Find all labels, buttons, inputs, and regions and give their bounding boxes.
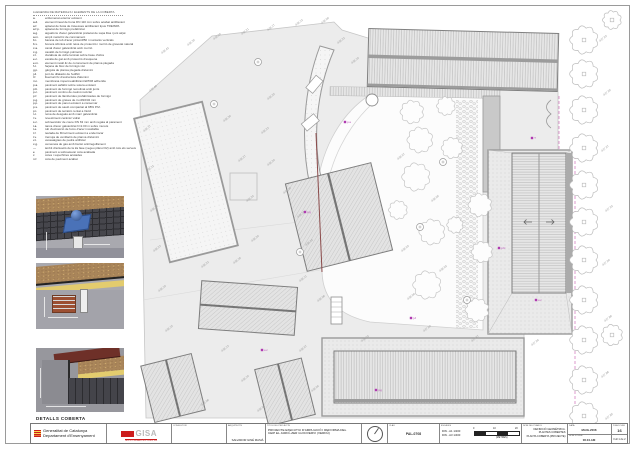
material-marker-code: p.fc: [501, 246, 506, 250]
consultor-cell: CONSULTOR: [171, 424, 226, 443]
arquitecte-label: ARQUITECTE: [228, 425, 242, 427]
gisa-logo-icon: [121, 431, 134, 437]
escales-cell: ESCALES DIN - A1 1/200 DIN - A3 1/400 0 …: [439, 424, 521, 443]
plan-name-line3: PLANTA COBERTA (PROJECTE): [527, 435, 566, 438]
material-marker-icon: [304, 211, 306, 213]
escala-a1: DIN - A1 1/200: [442, 429, 460, 433]
tree-icon: [570, 246, 598, 274]
planol-subcell: PLÀNOL NÚM. 16: [612, 424, 627, 434]
fitxer-value: 06.04.AM: [568, 438, 610, 442]
tree-icon: [570, 60, 598, 88]
building-east-wing: [488, 150, 572, 334]
tree-icon: [570, 96, 598, 124]
tree-icon: [570, 134, 598, 162]
fitxer-label: NOM FITXER: [569, 435, 583, 437]
full-value: Full 1 de 2: [612, 438, 627, 441]
plan-name-label: NOM DEL PLÀNOL: [523, 425, 542, 427]
gisa-name: GISA: [135, 430, 157, 437]
generalitat-line2: Departament d'Ensenyament: [43, 434, 95, 439]
spot-elevation: 437.93: [598, 34, 608, 43]
planter-circle: [366, 94, 378, 106]
detail-photo-edge: [36, 263, 124, 329]
escala-a3: DIN - A3 1/400: [442, 433, 460, 437]
scale-tick-0: 0: [473, 427, 474, 430]
building-south-roof: [198, 281, 297, 336]
spot-elevation: 437.86: [600, 370, 610, 379]
planol-value: 16: [612, 428, 627, 433]
data-label: DATA: [569, 425, 575, 427]
building-southeast-wing: [322, 338, 524, 416]
sheet-number-cell: PLÀNOL NÚM. 16 Full 1 de 2: [611, 424, 627, 443]
material-marker-icon: [498, 247, 500, 249]
data-subcell: DATA MAIG-2008: [568, 424, 611, 434]
material-marker-code: p.g: [307, 211, 311, 214]
plan-sheet: 438.42438.35438.28438.21438.17438.12438.…: [0, 0, 635, 449]
building-north-roof: [367, 29, 558, 92]
details-section-label: DETALLS COBERTA: [36, 416, 86, 421]
spot-elevation: 437.95: [602, 88, 612, 97]
gisa-cell: GISA GESTIÓ D'INFRAESTRUCTURES, S.A.: [106, 424, 171, 443]
escales-label: ESCALES: [441, 425, 451, 427]
spot-elevation: 437.94: [530, 338, 540, 347]
generalitat-logo-icon: [34, 430, 41, 437]
detail-photo-parapet: [36, 348, 124, 412]
materials-legend: LLEGENDA DE MATERIALS I ELEMENTS DE LA C…: [33, 11, 215, 162]
north-cell: [361, 424, 387, 443]
title-block: Generalitat de Catalunya Departament d'E…: [30, 423, 628, 444]
vent-pipe: [80, 289, 88, 313]
material-marker-icon: [410, 317, 412, 319]
parapet-wall: [42, 360, 70, 404]
material-marker-code: p.g: [378, 389, 382, 392]
material-marker-code: p.a: [347, 121, 351, 124]
scale-tick-10: 10: [493, 427, 496, 430]
arquitecte-name: SALVADOR GINÉ MASIÀ: [232, 438, 264, 442]
legend-header: LLEGENDA DE MATERIALS I ELEMENTS DE LA C…: [33, 11, 123, 16]
legend-items: a.enllumenat exterior existenta.d.elemen…: [33, 17, 215, 161]
scale-units: (METRES): [496, 436, 508, 439]
north-arrow-icon: [367, 426, 383, 442]
graphic-scale-bar: [474, 431, 520, 436]
material-marker-icon: [344, 121, 346, 123]
legend-row: n.f.cota de paviment acabat: [33, 158, 215, 162]
tree-icon: [447, 217, 463, 234]
drain-dome: [71, 210, 82, 221]
clau-label: CLAU: [389, 425, 395, 427]
spot-elevation: 437.85: [604, 412, 614, 421]
tree-icon: [570, 26, 598, 54]
exterior-stair: [331, 297, 342, 324]
tree-icon: [570, 366, 598, 394]
data-fitxer-cell: DATA MAIG-2008 NOM FITXER 06.04.AM: [567, 424, 611, 443]
full-subcell: Full 1 de 2: [612, 434, 627, 444]
brick-stack: [52, 295, 76, 313]
arquitecte-cell: ARQUITECTE SALVADOR GINÉ MASIÀ: [226, 424, 265, 443]
material-marker-code: j.d: [412, 316, 416, 320]
tree-icon: [570, 326, 598, 354]
detail-photo-drain: [36, 196, 124, 258]
tree-icon: [570, 208, 598, 236]
spot-elevation: 437.88: [603, 314, 613, 323]
generalitat-cell: Generalitat de Catalunya Departament d'E…: [31, 424, 106, 443]
material-marker-icon: [531, 137, 533, 139]
spot-elevation: 437.90: [601, 258, 611, 267]
consultor-label: CONSULTOR: [173, 425, 187, 427]
data-value: MAIG-2008: [568, 428, 610, 432]
material-marker-icon: [535, 299, 537, 301]
project-title-cell: TÍTOL DEL PROJECTE PROJECTE EXECUTIU D'A…: [265, 424, 361, 443]
tree-icon: [570, 286, 598, 314]
spot-elevation: 437.92: [604, 204, 614, 213]
tree-icon: [601, 324, 622, 345]
project-title-line2: CEIP EL JARDÍ–ZER GUICIVERVI (VERDÚ): [268, 432, 346, 436]
tree-icon: [602, 11, 621, 30]
project-title-label: TÍTOL DEL PROJECTE: [267, 425, 290, 427]
planol-label: PLÀNOL NÚM.: [613, 425, 625, 427]
tree-icon: [570, 171, 598, 199]
spot-elevation: 437.97: [600, 144, 610, 153]
fitxer-subcell: NOM FITXER 06.04.AM: [568, 434, 611, 444]
material-marker-icon: [261, 349, 263, 351]
clau-value: PAL-0708: [388, 432, 439, 436]
scale-tick-20: 20: [515, 427, 518, 430]
gisa-subtitle: GESTIÓ D'INFRAESTRUCTURES, S.A.: [125, 439, 157, 442]
material-marker-icon: [375, 389, 377, 391]
plan-name-cell: NOM DEL PLÀNOL DEFINICIÓ GEOMÈTRICA. PLA…: [521, 424, 567, 443]
clau-cell: CLAU PAL-0708: [387, 424, 439, 443]
